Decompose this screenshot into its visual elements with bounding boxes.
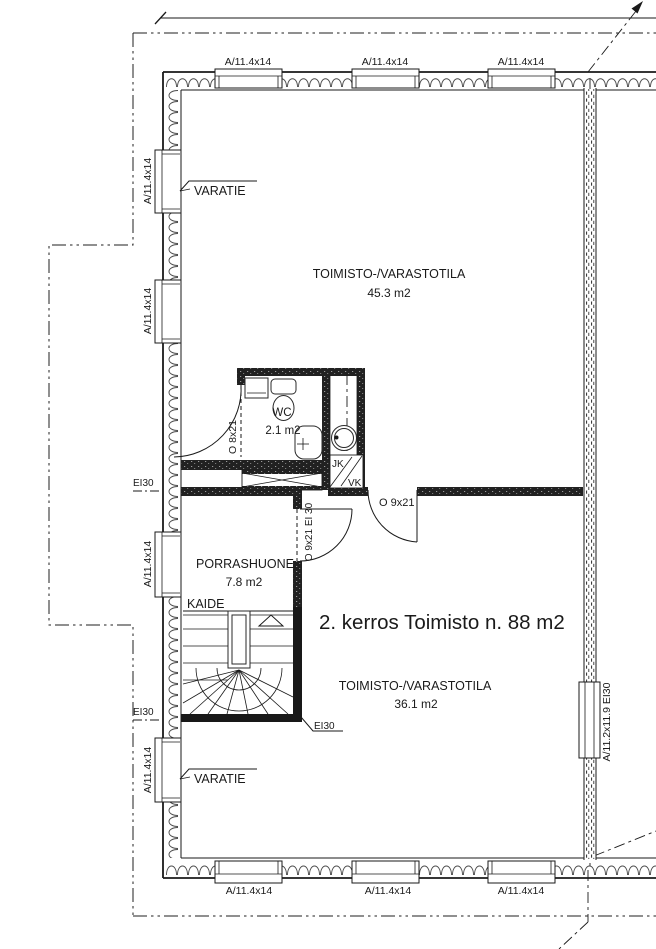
varatie-top-label: VARATIE bbox=[194, 184, 246, 198]
kitchen-faucet-icon bbox=[335, 436, 339, 440]
jk-label: JK bbox=[332, 459, 344, 470]
stairwell-east-wall-lower bbox=[293, 561, 302, 607]
window-label: A/11.4x14 bbox=[498, 56, 545, 68]
stair-bottom-wall bbox=[181, 714, 302, 722]
window-label: A/11.4x14 bbox=[226, 885, 273, 897]
window-label: A/11.4x14 bbox=[498, 885, 545, 897]
office-door-label: O 9x21 bbox=[379, 497, 414, 509]
ei30-label: EI30 bbox=[133, 478, 154, 489]
floor-plan-page: JK VK A/11.4x14 A/11.4x14 A/11.4x14 bbox=[0, 0, 656, 949]
window-right: A/11.2x11.9 EI30 bbox=[579, 682, 613, 762]
stairwell-name: PORRASHUONE bbox=[196, 557, 294, 571]
window-left-3: A/11.4x14 bbox=[142, 532, 181, 597]
wc-east-wall bbox=[322, 368, 330, 490]
window-label: A/11.2x11.9 EI30 bbox=[601, 682, 613, 761]
windows-top: A/11.4x14 A/11.4x14 A/11.4x14 bbox=[215, 56, 555, 88]
duct-box-top-hatch bbox=[242, 470, 322, 474]
office-top-area: 45.3 m2 bbox=[367, 286, 411, 300]
duct-box bbox=[242, 470, 322, 490]
wc-name: WC bbox=[272, 407, 291, 419]
office-top-name: TOIMISTO-/VARASTOTILA bbox=[313, 267, 466, 281]
office-bottom-area: 36.1 m2 bbox=[394, 697, 438, 711]
stairwell-door-label: O 9x21 EI 30 bbox=[304, 502, 315, 561]
wc-area: 2.1 m2 bbox=[265, 425, 300, 437]
window-left-1: A/11.4x14 bbox=[142, 150, 181, 213]
wall-below-wc bbox=[181, 460, 330, 470]
windows-bottom: A/11.4x14 A/11.4x14 A/11.4x14 bbox=[215, 861, 555, 897]
window-label: A/11.4x14 bbox=[225, 56, 272, 68]
wc-top-wall bbox=[237, 368, 365, 376]
window-label: A/11.4x14 bbox=[142, 158, 154, 205]
window-label: A/11.4x14 bbox=[142, 747, 154, 794]
window-bottom-1: A/11.4x14 bbox=[215, 861, 282, 897]
ei30-label: EI30 bbox=[314, 721, 335, 732]
wc-door-label: O 8x21 bbox=[227, 420, 239, 454]
ei30-label: EI30 bbox=[133, 707, 154, 718]
window-label: A/11.4x14 bbox=[365, 885, 412, 897]
plan-title: 2. kerros Toimisto n. 88 m2 bbox=[319, 611, 565, 634]
office-bottom-name: TOIMISTO-/VARASTOTILA bbox=[339, 679, 492, 693]
stairwell-area: 7.8 m2 bbox=[226, 575, 263, 589]
midwall-east-segment bbox=[417, 487, 583, 496]
toilet-tank bbox=[271, 379, 296, 394]
floor-plan-svg: JK VK A/11.4x14 A/11.4x14 A/11.4x14 bbox=[0, 0, 656, 949]
varatie-bottom-label: VARATIE bbox=[194, 772, 246, 786]
vk-label: VK bbox=[348, 478, 362, 489]
window-label: A/11.4x14 bbox=[142, 541, 154, 588]
window-left-2: A/11.4x14 bbox=[142, 280, 181, 343]
stair-newel-inner bbox=[232, 615, 246, 664]
wc-sink bbox=[245, 378, 268, 398]
kaide-label: KAIDE bbox=[187, 597, 225, 611]
window-left-4: A/11.4x14 bbox=[142, 738, 181, 802]
window-label: A/11.4x14 bbox=[362, 56, 409, 68]
window-label: A/11.4x14 bbox=[142, 288, 154, 335]
stair-east-wall bbox=[293, 607, 302, 722]
wc-west-wall-stub bbox=[237, 368, 245, 385]
duct-box-bottom-hatch bbox=[242, 486, 322, 490]
